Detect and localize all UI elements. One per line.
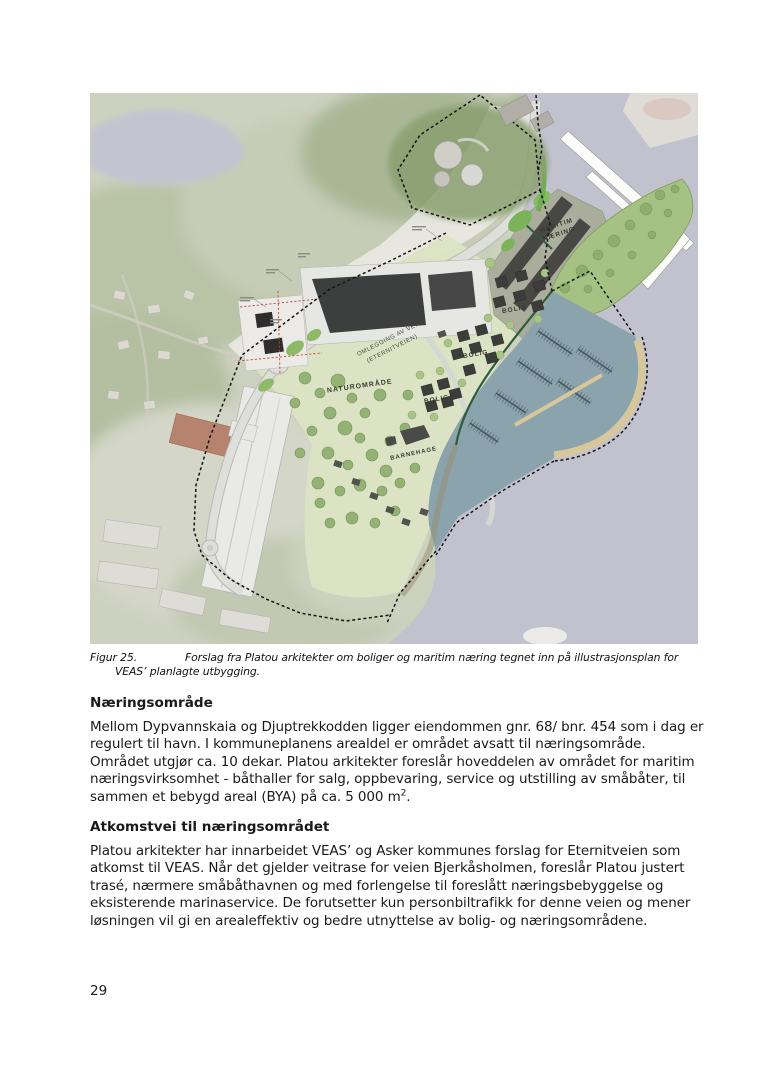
paragraph-atkomstvei: Platou arkitekter har innarbeidet VEAS’ …	[90, 843, 706, 930]
document-page: { "page": { "number": "29" }, "figure": …	[0, 0, 764, 1080]
page-number: 29	[90, 983, 107, 999]
heading-atkomstvei: Atkomstvei til næringsområdet	[90, 819, 706, 835]
heading-naeringsomrade: Næringsområde	[90, 695, 706, 711]
figure-caption: Figur 25. Forslag fra Platou arkitekter …	[90, 651, 706, 678]
paragraph-naeringsomrade: Mellom Dypvannskaia og Djuptrekkodden li…	[90, 719, 706, 806]
paragraph-naeringsomrade-end: .	[406, 789, 410, 805]
site-plan-map: MARITIM NÆRING BOLIG BOLIG BOLIG NATUROM…	[90, 93, 698, 644]
paragraph-naeringsomrade-text: Mellom Dypvannskaia og Djuptrekkodden li…	[90, 719, 703, 805]
site-plan-figure: MARITIM NÆRING BOLIG BOLIG BOLIG NATUROM…	[90, 93, 698, 644]
figure-caption-text: Forslag fra Platou arkitekter om boliger…	[115, 651, 700, 678]
page-content: MARITIM NÆRING BOLIG BOLIG BOLIG NATUROM…	[90, 93, 706, 930]
figure-caption-label: Figur 25.	[90, 651, 137, 665]
